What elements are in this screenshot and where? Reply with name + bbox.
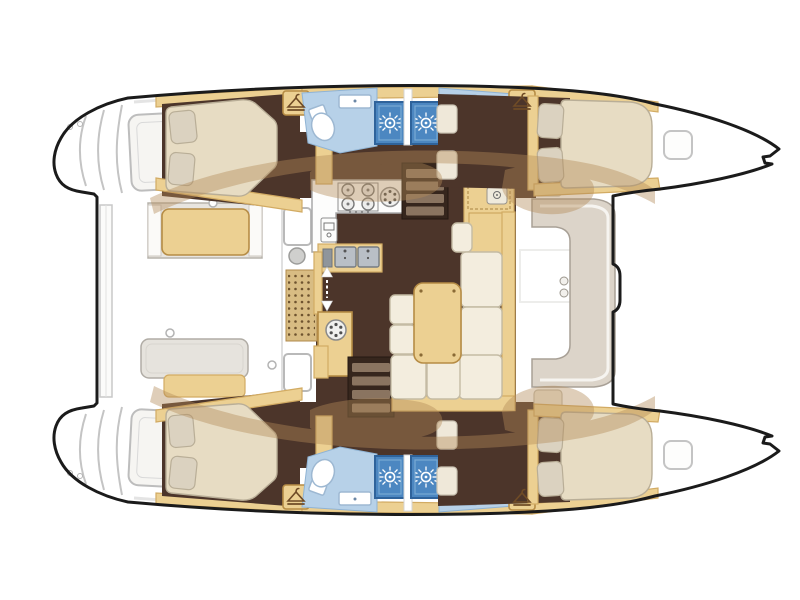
- stool-cushion: [390, 295, 416, 324]
- sofa-corner-cushion: [459, 355, 502, 399]
- galley-step: [314, 346, 328, 378]
- cup-holder-icon: [560, 289, 568, 297]
- salon-front-wall: [502, 212, 515, 404]
- ring-pull-icon: [166, 329, 174, 337]
- galley-wall: [314, 252, 322, 314]
- cockpit-bench-cushion: [162, 209, 249, 255]
- cockpit-sink-icon: [289, 248, 305, 264]
- pillow: [537, 103, 564, 139]
- c-shaped-seat: [532, 199, 615, 387]
- aft-cockpit: [100, 199, 317, 398]
- bow-hatch: [664, 131, 692, 159]
- pillow: [168, 152, 196, 186]
- wetbar-sink-dot: [496, 194, 498, 196]
- entry-seat-pad: [437, 105, 457, 133]
- cockpit-window: [284, 354, 311, 391]
- ring-pull-icon: [268, 361, 276, 369]
- deck-plan: [0, 0, 800, 600]
- sofa-cushion: [461, 252, 502, 307]
- cockpit-window: [284, 208, 311, 245]
- cup-holder-icon: [560, 277, 568, 285]
- pillow: [168, 110, 197, 145]
- stool-cushion: [390, 325, 416, 354]
- basin-faucet-dot: [354, 100, 357, 103]
- salon-table: [414, 283, 461, 363]
- drainer: [323, 249, 332, 267]
- sofa-cushion: [461, 307, 502, 357]
- sofa-cushion: [452, 223, 472, 252]
- cockpit-bench-gray: [141, 339, 248, 378]
- cockpit-bench-cushion-2: [164, 375, 245, 397]
- bench-backrest: [249, 205, 262, 256]
- door-mat-dots: [288, 272, 315, 339]
- deck-plan-canvas: [0, 0, 800, 600]
